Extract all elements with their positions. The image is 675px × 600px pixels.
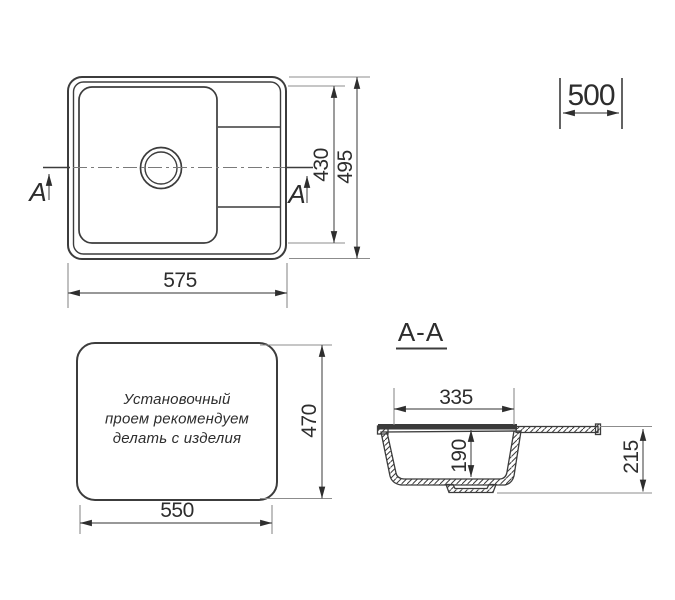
cabinet-width-label: 500 xyxy=(567,79,614,112)
dim-label-inner-depth: 430 xyxy=(310,148,333,182)
dim-label-overall-depth: 495 xyxy=(334,150,357,184)
section-title: A-A xyxy=(398,317,444,347)
section-label-right: A xyxy=(286,179,305,209)
drainboard-section-strip xyxy=(516,427,598,433)
cutout-note-line2: проем рекомендуем xyxy=(105,411,249,428)
dim-label-overall-width: 575 xyxy=(163,269,197,292)
section-view: A-A 335 190 215 xyxy=(378,317,653,493)
plan-view: A A 575 430 495 xyxy=(27,77,370,308)
section-label-left: A xyxy=(27,177,46,207)
dim-label-overall-height: 215 xyxy=(620,440,643,474)
cutout-note-line1: Установочный xyxy=(123,391,231,408)
cutout-note-line3: делать с изделия xyxy=(113,430,241,447)
drainboard-end-cap xyxy=(596,424,601,435)
cutout-view: Установочный проем рекомендуем делать с … xyxy=(77,343,332,534)
technical-drawing-page: A A 575 430 495 500 Установочный проем р… xyxy=(0,0,675,600)
drain-section xyxy=(446,485,496,493)
sink-dimension-drawing: A A 575 430 495 500 Установочный проем р… xyxy=(0,0,675,600)
rim-top-edge xyxy=(378,424,517,430)
dim-label-bowl-depth: 190 xyxy=(448,439,471,473)
cabinet-width-indicator: 500 xyxy=(560,78,622,129)
dim-label-bowl-width: 335 xyxy=(439,386,473,409)
dim-label-cutout-width: 550 xyxy=(160,499,194,522)
dim-label-cutout-depth: 470 xyxy=(298,404,321,438)
bowl-outline xyxy=(79,87,217,243)
